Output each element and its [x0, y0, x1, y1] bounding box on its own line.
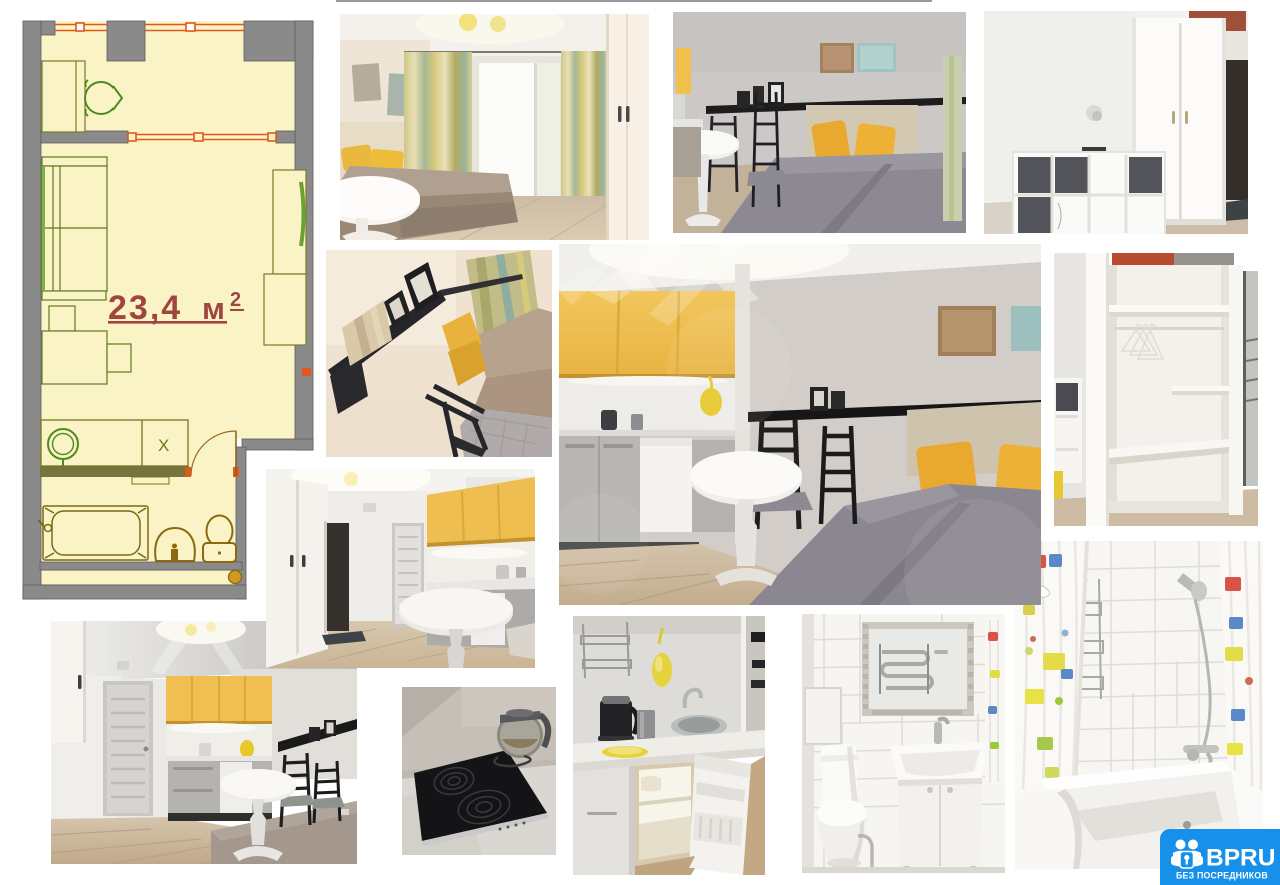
svg-text:X: X: [158, 436, 169, 455]
svg-text:м: м: [202, 291, 225, 326]
svg-text:BPRU: BPRU: [1206, 845, 1275, 872]
svg-text:2: 2: [230, 289, 241, 311]
svg-text:БЕЗ ПОСРЕДНИКОВ: БЕЗ ПОСРЕДНИКОВ: [1176, 871, 1268, 881]
